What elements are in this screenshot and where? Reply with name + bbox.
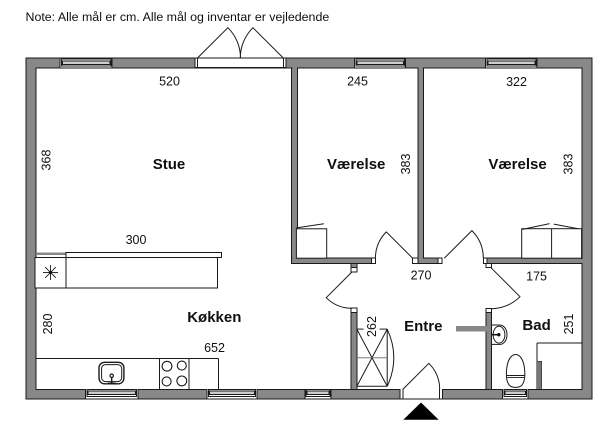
svg-text:383: 383 — [399, 154, 413, 175]
svg-text:Værelse: Værelse — [327, 156, 385, 173]
svg-text:652: 652 — [204, 341, 225, 355]
svg-text:520: 520 — [159, 75, 180, 89]
svg-text:Note: Alle mål er cm. Alle mål: Note: Alle mål er cm. Alle mål og invent… — [26, 10, 330, 24]
svg-text:245: 245 — [347, 75, 368, 89]
svg-text:Stue: Stue — [153, 156, 186, 173]
svg-text:270: 270 — [411, 268, 432, 282]
svg-text:175: 175 — [526, 270, 547, 284]
svg-text:300: 300 — [126, 233, 147, 247]
svg-text:262: 262 — [365, 316, 379, 337]
svg-text:383: 383 — [562, 154, 576, 175]
svg-text:322: 322 — [506, 75, 527, 89]
svg-text:Værelse: Værelse — [488, 156, 546, 173]
svg-text:Entre: Entre — [404, 318, 442, 335]
svg-text:Køkken: Køkken — [187, 309, 241, 326]
svg-text:368: 368 — [40, 150, 54, 171]
svg-text:Bad: Bad — [522, 317, 550, 334]
svg-text:251: 251 — [562, 314, 576, 335]
svg-text:280: 280 — [41, 314, 55, 335]
